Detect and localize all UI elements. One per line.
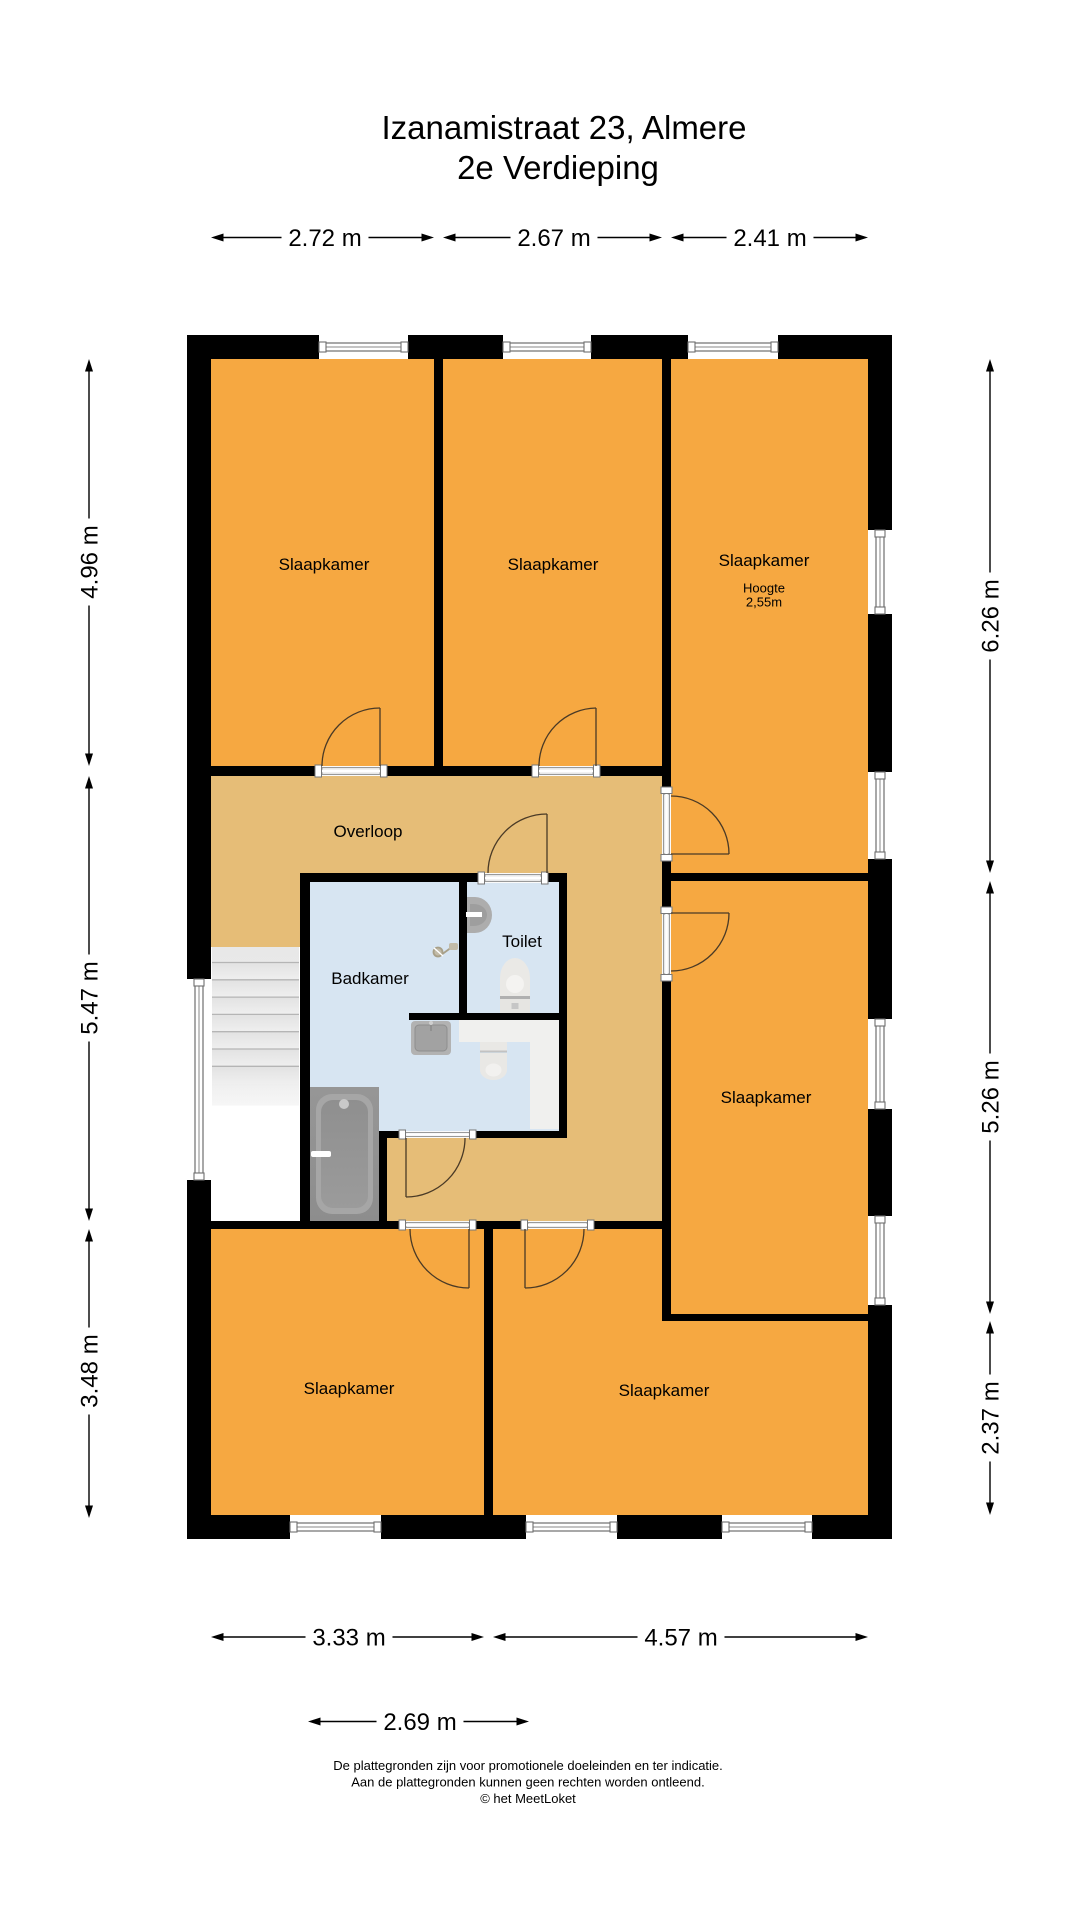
svg-text:5.47 m: 5.47 m	[76, 961, 103, 1034]
svg-text:Izanamistraat 23, Almere: Izanamistraat 23, Almere	[382, 109, 747, 146]
svg-text:2.37 m: 2.37 m	[977, 1381, 1004, 1454]
svg-text:4.57 m: 4.57 m	[644, 1624, 717, 1651]
svg-text:2,55m: 2,55m	[746, 595, 782, 610]
svg-text:2e Verdieping: 2e Verdieping	[457, 149, 659, 186]
svg-text:6.26 m: 6.26 m	[977, 579, 1004, 652]
svg-text:5.26 m: 5.26 m	[977, 1060, 1004, 1133]
svg-text:Overloop: Overloop	[334, 822, 403, 841]
svg-text:2.67 m: 2.67 m	[517, 225, 590, 252]
svg-text:De plattegronden zijn voor pro: De plattegronden zijn voor promotionele …	[333, 1758, 723, 1773]
svg-text:Hoogte: Hoogte	[743, 581, 785, 596]
svg-text:Badkamer: Badkamer	[331, 969, 409, 988]
svg-text:Slaapkamer: Slaapkamer	[279, 555, 370, 574]
svg-text:3.48 m: 3.48 m	[76, 1334, 103, 1407]
svg-text:4.96 m: 4.96 m	[76, 525, 103, 598]
svg-text:2.72 m: 2.72 m	[288, 225, 361, 252]
svg-text:Slaapkamer: Slaapkamer	[619, 1381, 710, 1400]
svg-text:2.69 m: 2.69 m	[383, 1709, 456, 1736]
svg-text:© het MeetLoket: © het MeetLoket	[480, 1791, 576, 1806]
svg-text:Slaapkamer: Slaapkamer	[304, 1379, 395, 1398]
svg-text:Slaapkamer: Slaapkamer	[508, 555, 599, 574]
svg-text:2.41 m: 2.41 m	[733, 225, 806, 252]
svg-text:Toilet: Toilet	[502, 932, 542, 951]
svg-text:Slaapkamer: Slaapkamer	[719, 551, 810, 570]
svg-text:Slaapkamer: Slaapkamer	[721, 1088, 812, 1107]
svg-text:Aan de plattegronden kunnen ge: Aan de plattegronden kunnen geen rechten…	[351, 1775, 704, 1790]
svg-text:3.33 m: 3.33 m	[312, 1624, 385, 1651]
